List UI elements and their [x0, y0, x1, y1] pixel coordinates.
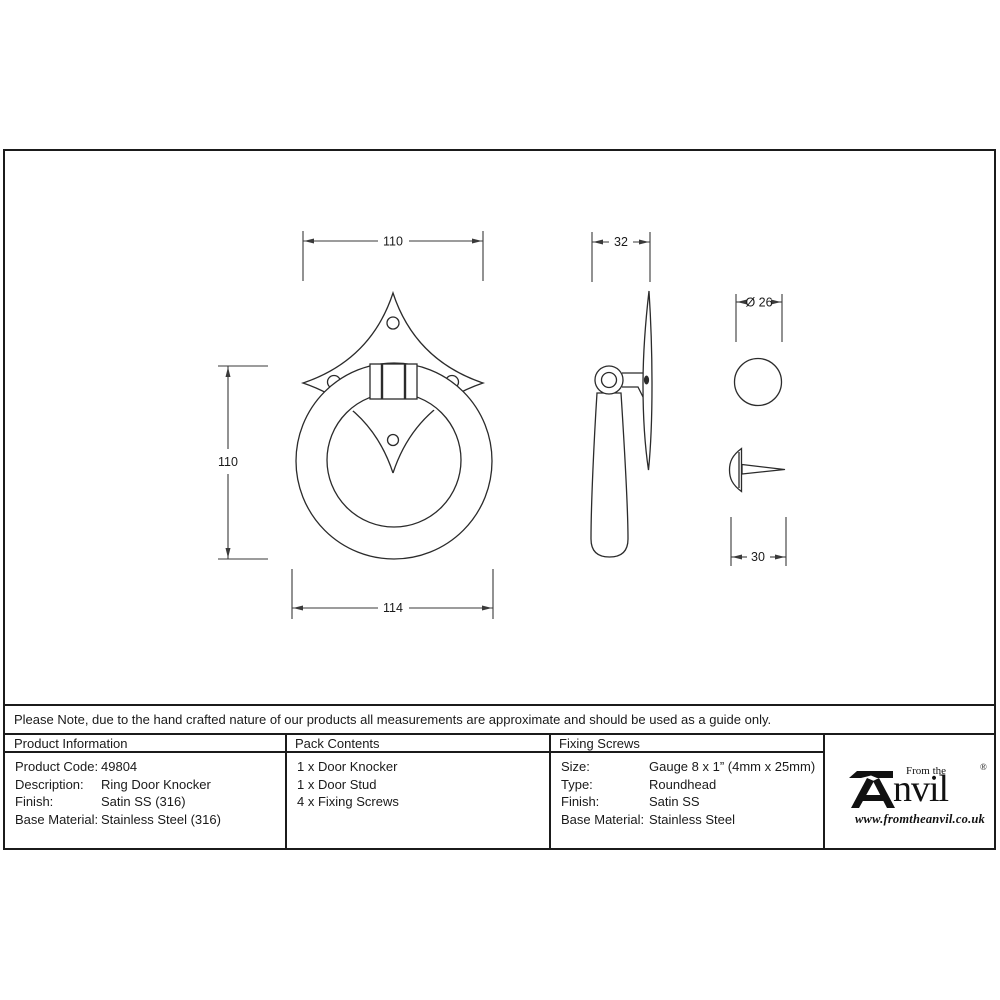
- screw-hole-top: [387, 317, 399, 329]
- spec-row: Base Material: Stainless Steel: [561, 811, 815, 829]
- dim-label: Ø 26: [745, 296, 772, 310]
- dim-label: 110: [218, 455, 238, 469]
- logo-tagline: From the: [906, 765, 946, 777]
- spec-row: Product Code: 49804: [15, 758, 221, 776]
- dim-label: 110: [383, 235, 403, 249]
- dim-label: 32: [614, 235, 628, 249]
- spec-value: Stainless Steel: [649, 811, 735, 829]
- spec-row: Type: Roundhead: [561, 776, 815, 794]
- stud-front-view: [735, 359, 782, 406]
- spec-row: Finish: Satin SS: [561, 793, 815, 811]
- spec-table: Product Information Pack Contents Fixing…: [5, 733, 994, 848]
- spec-value: Gauge 8 x 1” (4mm x 25mm): [649, 758, 815, 776]
- product-information-header: Product Information: [14, 736, 127, 751]
- pack-contents-list: 1 x Door Knocker 1 x Door Stud 4 x Fixin…: [297, 758, 399, 811]
- side-view-pivot-pin: [644, 376, 649, 385]
- spec-label: Finish:: [15, 793, 101, 811]
- spec-label: Base Material:: [15, 811, 101, 829]
- pack-item: 4 x Fixing Screws: [297, 793, 399, 811]
- spec-value: Satin SS (316): [101, 793, 186, 811]
- spec-label: Size:: [561, 758, 649, 776]
- note-text: Please Note, due to the hand crafted nat…: [14, 712, 771, 727]
- product-information-rows: Product Code: 49804 Description: Ring Do…: [15, 758, 221, 828]
- stud-spike: [742, 465, 785, 475]
- spec-row: Size: Gauge 8 x 1” (4mm x 25mm): [561, 758, 815, 776]
- spec-value: Roundhead: [649, 776, 716, 794]
- spec-label: Base Material:: [561, 811, 649, 829]
- dimension-width-110: 110: [303, 231, 483, 281]
- anvil-icon: [848, 768, 896, 808]
- side-view-ring-handle: [591, 393, 628, 557]
- header-divider: [5, 751, 824, 753]
- from-the-anvil-logo: nvil From the ® www.fromtheanvil.co.uk: [848, 765, 994, 827]
- logo-website: www.fromtheanvil.co.uk: [844, 812, 996, 827]
- dim-label: 30: [751, 550, 765, 564]
- spec-value: 49804: [101, 758, 137, 776]
- spec-label: Product Code:: [15, 758, 101, 776]
- dimension-stud-diameter: Ø 26: [736, 294, 782, 342]
- dimension-stud-length: 30: [731, 517, 786, 566]
- spec-value: Ring Door Knocker: [101, 776, 211, 794]
- stud-side-view: [730, 449, 785, 492]
- measurement-note: Please Note, due to the hand crafted nat…: [5, 704, 994, 733]
- fixing-screws-rows: Size: Gauge 8 x 1” (4mm x 25mm) Type: Ro…: [561, 758, 815, 828]
- front-view-hinge: [370, 364, 417, 399]
- spec-label: Finish:: [561, 793, 649, 811]
- spec-row: Base Material: Stainless Steel (316): [15, 811, 221, 829]
- spec-value: Satin SS: [649, 793, 700, 811]
- brand-logo-cell: nvil From the ® www.fromtheanvil.co.uk: [825, 735, 994, 848]
- spec-label: Description:: [15, 776, 101, 794]
- fixing-screws-header: Fixing Screws: [559, 736, 640, 751]
- dim-label: 114: [383, 601, 403, 615]
- dimension-height-110: 110: [218, 366, 268, 559]
- registered-mark: ®: [980, 762, 987, 772]
- screw-hole-center: [388, 435, 399, 446]
- spec-value: Stainless Steel (316): [101, 811, 221, 829]
- spec-row: Finish: Satin SS (316): [15, 793, 221, 811]
- pack-contents-header: Pack Contents: [295, 736, 380, 751]
- pack-item: 1 x Door Knocker: [297, 758, 399, 776]
- stud-head: [730, 449, 742, 492]
- dimension-ring-114: 114: [292, 569, 493, 619]
- dimension-depth-32: 32: [592, 232, 650, 282]
- side-view: [591, 291, 652, 557]
- spec-sheet: 110 110 114: [3, 149, 996, 850]
- spec-label: Type:: [561, 776, 649, 794]
- technical-drawing: 110 110 114: [5, 151, 994, 704]
- spec-row: Description: Ring Door Knocker: [15, 776, 221, 794]
- pack-item: 1 x Door Stud: [297, 776, 399, 794]
